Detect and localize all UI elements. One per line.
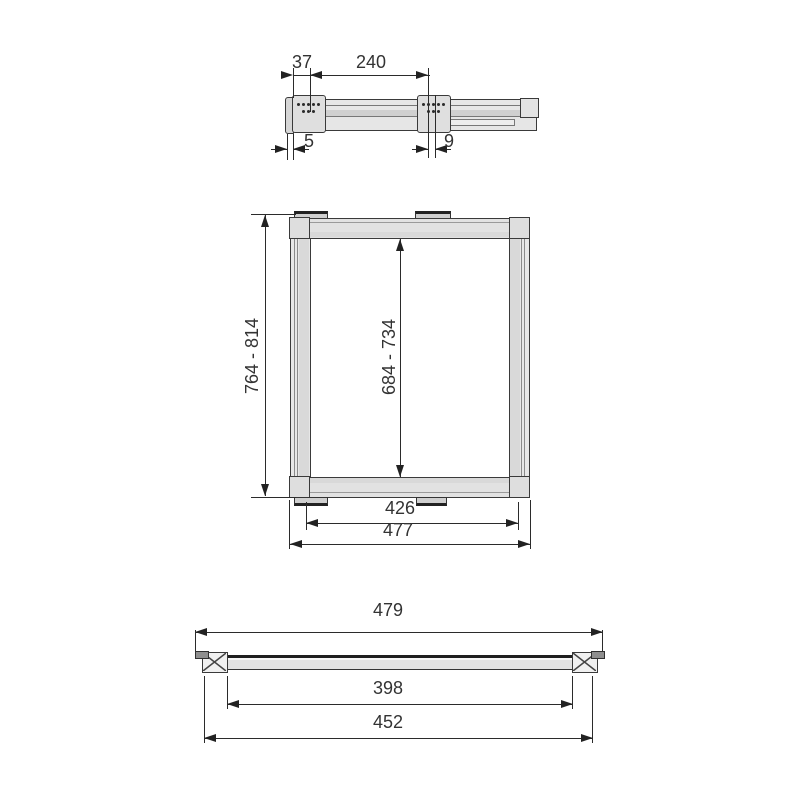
extension-line — [518, 502, 519, 530]
dimension-line — [290, 544, 530, 545]
bar-highlight-line — [227, 658, 573, 660]
extension-line — [287, 134, 288, 160]
mounting-bracket-rear — [417, 95, 451, 133]
dimension-line — [204, 738, 593, 739]
slide-rail-body — [292, 99, 537, 131]
extension-line — [204, 676, 205, 743]
bracket-holes-top-row — [422, 103, 425, 106]
extension-line — [530, 500, 531, 549]
rail-profile-band — [510, 219, 520, 497]
bottom-hanger-tab — [294, 497, 328, 506]
dim-label-front-gap: 5 — [298, 132, 320, 150]
dimension-arrow — [261, 215, 269, 227]
extension-line — [592, 676, 593, 743]
dim-label-bracket-offset: 37 — [287, 53, 317, 71]
cap-lip-right — [591, 651, 605, 659]
frame-right-rail — [509, 218, 530, 498]
frame-top-rail — [290, 218, 530, 239]
cap-lip-left — [195, 651, 209, 659]
dimension-arrow — [275, 145, 287, 153]
dim-label-overall-length: 479 — [358, 601, 418, 619]
rail-profile-line — [521, 219, 522, 497]
rail-profile-band — [291, 478, 529, 483]
dim-label-inner-length: 398 — [358, 679, 418, 697]
rail-profile-line — [297, 219, 298, 497]
dim-label-inner-width: 426 — [370, 499, 430, 517]
dimension-line — [265, 215, 266, 496]
frame-bottom-rail — [290, 477, 530, 498]
dimension-arrow — [416, 71, 428, 79]
rail-profile-line — [291, 222, 529, 223]
dimension-arrow — [261, 484, 269, 496]
dimension-line — [400, 239, 401, 477]
rail-step-notch — [448, 119, 515, 126]
rail-profile-line — [293, 105, 536, 106]
dimension-arrow — [195, 628, 207, 636]
dimension-arrow — [518, 540, 530, 548]
dimension-arrow — [561, 700, 573, 708]
dimension-arrow — [306, 519, 318, 527]
extension-line — [602, 630, 603, 652]
mounting-bracket-front — [292, 95, 326, 133]
corner-connector — [289, 217, 310, 239]
extension-line — [293, 68, 294, 98]
cross-bar — [227, 655, 573, 670]
corner-connector — [509, 217, 530, 239]
rail-profile-line — [294, 219, 295, 497]
extension-line — [428, 68, 429, 158]
rail-profile-line — [291, 492, 529, 493]
dimension-arrow — [396, 239, 404, 251]
dim-label-fixing-length: 452 — [358, 713, 418, 731]
extension-line — [251, 497, 296, 498]
dimension-line — [227, 704, 573, 705]
dimension-arrow — [416, 145, 428, 153]
dimension-arrow — [290, 540, 302, 548]
rail-profile-line — [293, 116, 536, 117]
rail-end-block — [520, 98, 539, 118]
rail-profile-band — [299, 219, 309, 497]
frame-left-rail — [290, 218, 311, 498]
dimension-arrow — [506, 519, 518, 527]
dimension-arrow — [581, 734, 593, 742]
technical-drawing-canvas: 37 240 5 9 — [0, 0, 800, 800]
bracket-holes-bottom-row — [302, 110, 305, 113]
bracket-holes-top-row — [297, 103, 300, 106]
dimension-arrow — [310, 71, 322, 79]
corner-connector — [509, 476, 530, 498]
extension-line — [251, 214, 296, 215]
dimension-line — [195, 632, 603, 633]
rail-profile-line — [524, 219, 525, 497]
corner-connector — [289, 476, 310, 498]
dimension-arrow — [227, 700, 239, 708]
extension-line — [195, 630, 196, 652]
dimension-arrow — [204, 734, 216, 742]
dim-label-overall-height: 764 - 814 — [243, 306, 261, 406]
dimension-arrow — [396, 465, 404, 477]
dim-label-overall-width: 477 — [368, 521, 428, 539]
dim-label-rear-gap: 9 — [438, 132, 460, 150]
dimension-arrow — [281, 71, 293, 79]
dim-label-inner-height: 684 - 734 — [380, 307, 398, 407]
rail-profile-band — [291, 232, 529, 237]
dim-label-bracket-spacing: 240 — [345, 53, 397, 71]
